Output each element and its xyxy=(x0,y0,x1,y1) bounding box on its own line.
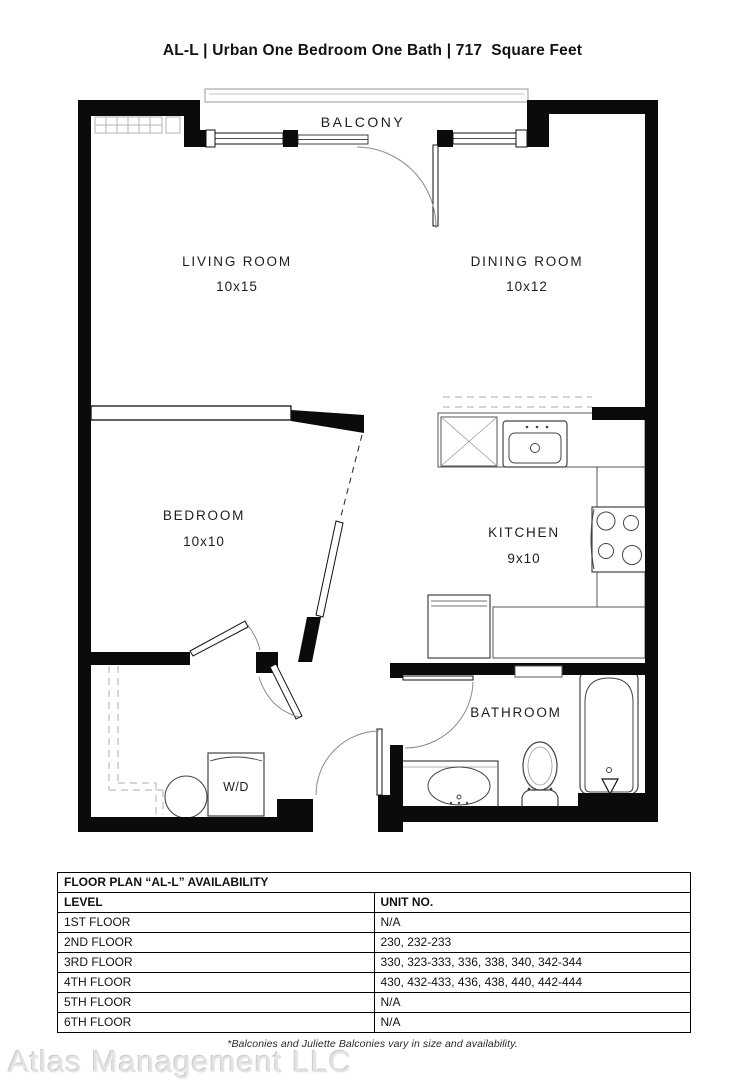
bedroom-sliding-door xyxy=(316,435,362,617)
units-cell: N/A xyxy=(374,1013,691,1033)
balcony-door xyxy=(357,145,438,228)
bedroom-dims: 10x10 xyxy=(183,534,225,549)
level-cell: 2ND FLOOR xyxy=(58,933,375,953)
bathroom-door xyxy=(403,676,473,748)
table-row: 2ND FLOOR 230, 232-233 xyxy=(58,933,691,953)
table-title: FLOOR PLAN “AL-L” AVAILABILITY xyxy=(58,873,691,893)
washer-dryer-label: W/D xyxy=(223,780,249,794)
balcony-windows xyxy=(206,130,527,147)
water-heater xyxy=(165,776,207,818)
kitchen-dims: 9x10 xyxy=(507,551,540,566)
level-cell: 6TH FLOOR xyxy=(58,1013,375,1033)
entry-door xyxy=(316,729,382,795)
entry-closet-dashes xyxy=(109,666,163,815)
unit-header: UNIT NO. xyxy=(374,893,691,913)
medicine-niche xyxy=(515,666,562,677)
balcony-label: BALCONY xyxy=(321,114,405,130)
kitchen-label: KITCHEN xyxy=(488,525,560,540)
baseboard-heater xyxy=(95,117,180,133)
bathtub xyxy=(580,671,638,794)
stove xyxy=(591,507,647,572)
level-header: LEVEL xyxy=(58,893,375,913)
table-header-row: LEVEL UNIT NO. xyxy=(58,893,691,913)
units-cell: 230, 232-233 xyxy=(374,933,691,953)
units-cell: N/A xyxy=(374,993,691,1013)
units-cell: N/A xyxy=(374,913,691,933)
units-cell: 430, 432-433, 436, 438, 440, 442-444 xyxy=(374,973,691,993)
table-row: 3RD FLOOR 330, 323-333, 336, 338, 340, 3… xyxy=(58,953,691,973)
living-room-label: LIVING ROOM xyxy=(182,254,292,269)
footnote: *Balconies and Juliette Balconies vary i… xyxy=(0,1038,745,1050)
availability-table: FLOOR PLAN “AL-L” AVAILABILITY LEVEL UNI… xyxy=(57,872,691,1033)
table-row: 5TH FLOOR N/A xyxy=(58,993,691,1013)
level-cell: 5TH FLOOR xyxy=(58,993,375,1013)
bedroom-label: BEDROOM xyxy=(163,508,245,523)
living-room-dims: 10x15 xyxy=(216,279,258,294)
table-row: 1ST FLOOR N/A xyxy=(58,913,691,933)
units-cell: 330, 323-333, 336, 338, 340, 342-344 xyxy=(374,953,691,973)
level-cell: 1ST FLOOR xyxy=(58,913,375,933)
table-title-row: FLOOR PLAN “AL-L” AVAILABILITY xyxy=(58,873,691,893)
table-row: 6TH FLOOR N/A xyxy=(58,1013,691,1033)
level-cell: 4TH FLOOR xyxy=(58,973,375,993)
dining-room-dims: 10x12 xyxy=(506,279,548,294)
kitchen-sink xyxy=(503,421,567,467)
level-cell: 3RD FLOOR xyxy=(58,953,375,973)
table-row: 4TH FLOOR 430, 432-433, 436, 438, 440, 4… xyxy=(58,973,691,993)
balcony-slab xyxy=(205,89,528,102)
closet-door xyxy=(190,621,260,656)
bathroom-label: BATHROOM xyxy=(470,705,561,720)
dining-room-label: DINING ROOM xyxy=(471,254,584,269)
refrigerator xyxy=(428,595,490,658)
bedroom-divider-wall xyxy=(91,406,291,420)
bathroom-vanity xyxy=(402,761,498,807)
